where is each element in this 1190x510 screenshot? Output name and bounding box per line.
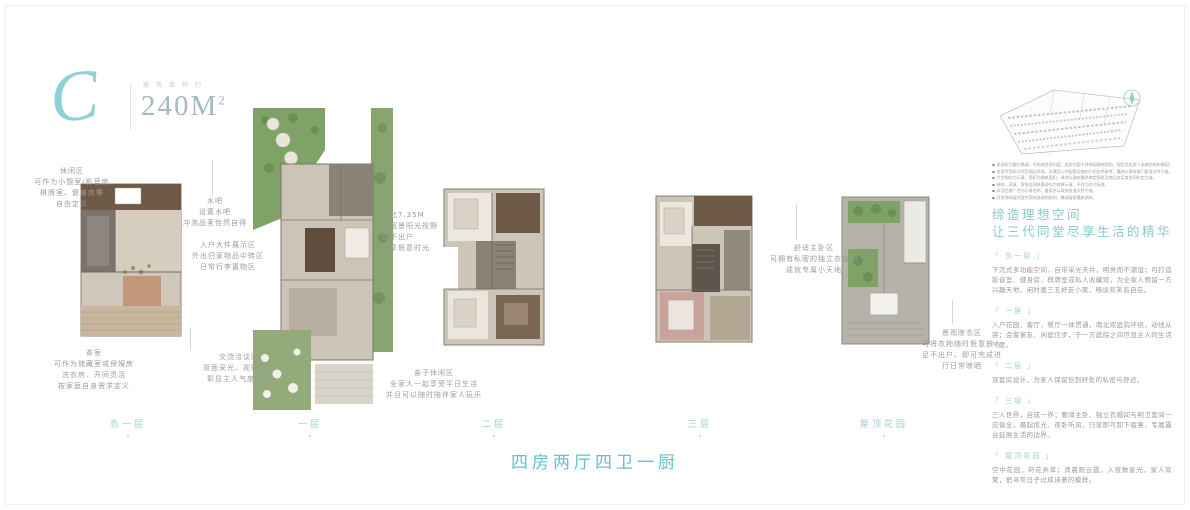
floor-label-dot [699,435,701,437]
section-label: 「 一层 」 [992,306,1172,316]
section-basement: 「 负一层 」 下沉式多功能空间，自带采光天井，明亮而不潮湿；可打造影音室、健身… [992,251,1172,295]
floor-label-second: 二层 [444,417,544,437]
floor-label-roof: 屋顶花园 [834,417,934,437]
disclaimer-line: 户型图仅为示意，面积为建筑面积，具体以政府最终审定图纸及商品房买卖合同约定为准。 [992,175,1170,182]
section-text: 双套房设计，为家人保留恰到好处的私密与舒适。 [992,375,1172,385]
floor-label-dot [309,435,311,437]
leader-line-laundry [952,300,953,324]
leader-line-master [796,204,797,240]
section-text: 下沉式多功能空间，自带采光天井，明亮而不潮湿；可打造影音室、健身房、棋牌室或私人… [992,265,1172,295]
section-first-floor: 「 一层 」 入户花园、客厅、餐厅一体贯通，南北双庭院环绕，动线从容；会客宴友、… [992,306,1172,350]
annotation-tearoom: 茶室 可作为储藏室或保姆房 洗衣房、开间灵活 按家庭自身需求定义 [24,348,164,392]
leader-line-talk [190,328,191,350]
disclaimer-line: 本资料为要约邀请，不构成合同内容；相关内容不排除因政府规划、规定及出卖人未能控制… [992,162,1170,169]
unit-layout-tagline: 四房两厅四卫一厨 [0,448,1190,473]
area-label: 建筑面积约 [143,80,227,89]
section-label: 「 二层 」 [992,361,1172,371]
sidebar-heading-line2: 让三代同堂尽享生活的精华 [992,223,1172,240]
section-text: 三人世界，自成一界；奢阔主卧、独立衣帽间与明卫套间一应俱全，晨起揽光、夜卧听风，… [992,410,1172,440]
annotation-family: 亲子休闲区 全家人一起享受平日生活 并且可以随时陪伴家人玩乐 [370,368,498,401]
floor-label-dot [883,435,885,437]
annotation-leisure: 休闲区 可作为小憩室/影音房 棋牌室、健身房等 自由定义 [26,166,118,210]
leader-line-waterbar [212,160,213,194]
annotation-waterbar: 水吧 设置水吧 冲泡品茗怡然自得 [180,196,250,229]
section-second-floor: 「 二层 」 双套房设计，为家人保留恰到好处的私密与舒适。 [992,361,1172,385]
section-label: 「 三层 」 [992,396,1172,406]
area-sup: 2 [218,92,227,107]
floor-label-dot [127,435,129,437]
annotation-talk: 交流洽谈区 双面采光、视野开阔 彰显主人气度风范 [184,352,294,385]
floor-label-third: 三层 [650,417,750,437]
section-label: 「 负一层 」 [992,251,1172,261]
disclaimer-list: 本资料为要约邀请，不构成合同内容；相关内容不排除因政府规划、规定及出卖人未能控制… [992,162,1170,201]
unit-monogram: C [46,58,101,135]
brochure-page: C 建筑面积约 240M2 [0,0,1190,510]
floorplan-third-floor-image [652,190,757,348]
annotation-display: 入户大件展示区 外出归家物品中转区 日常行李置物区 [178,240,278,273]
floor-label-dot [493,435,495,437]
section-text: 入户花园、客厅、餐厅一体贯通，南北双庭院环绕，动线从容；会客宴友、闲庭信步，于一… [992,320,1172,350]
area-block: 建筑面积约 240M2 [141,80,227,121]
floorplan-second-floor-image [440,183,548,351]
area-value: 240M2 [141,90,227,122]
description-column: 缔造理想空间 让三代同堂尽享生活的精华 「 负一层 」 下沉式多功能空间，自带采… [992,206,1172,485]
header-divider [130,84,131,130]
annotation-south: 南北7.35M 拥宽景阳光视野 足不出户 尽享惬意时光 [382,210,452,254]
floor-label-first: 一层 [260,417,360,437]
siteplan-sketch [992,84,1150,160]
annotation-master: 舒适主卧区 可拥有私密的独立衣帽间 成就专属小天地 [762,243,866,276]
compass-icon [1124,90,1140,106]
section-third-floor: 「 三层 」 三人世界，自成一界；奢阔主卧、独立衣帽间与明卫套间一应俱全，晨起揽… [992,396,1172,440]
floor-label-basement: 负一层 [78,417,178,437]
sidebar-heading-line1: 缔造理想空间 [992,206,1172,223]
disclaimer-line: 开发商保留对宣传资料修改的权利，敬请留意最新资料。 [992,195,1170,202]
